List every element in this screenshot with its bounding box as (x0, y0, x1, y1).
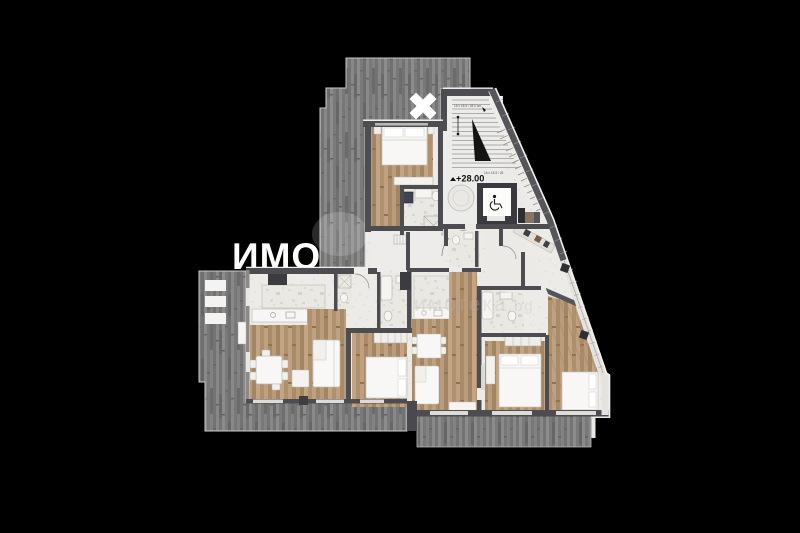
svg-text:16 x 18.5 / 28: 16 x 18.5 / 28 (484, 171, 504, 175)
svg-text:15 x 18.5 / 28.0 cm: 15 x 18.5 / 28.0 cm (454, 104, 481, 108)
svg-text:+28.00: +28.00 (456, 174, 484, 184)
